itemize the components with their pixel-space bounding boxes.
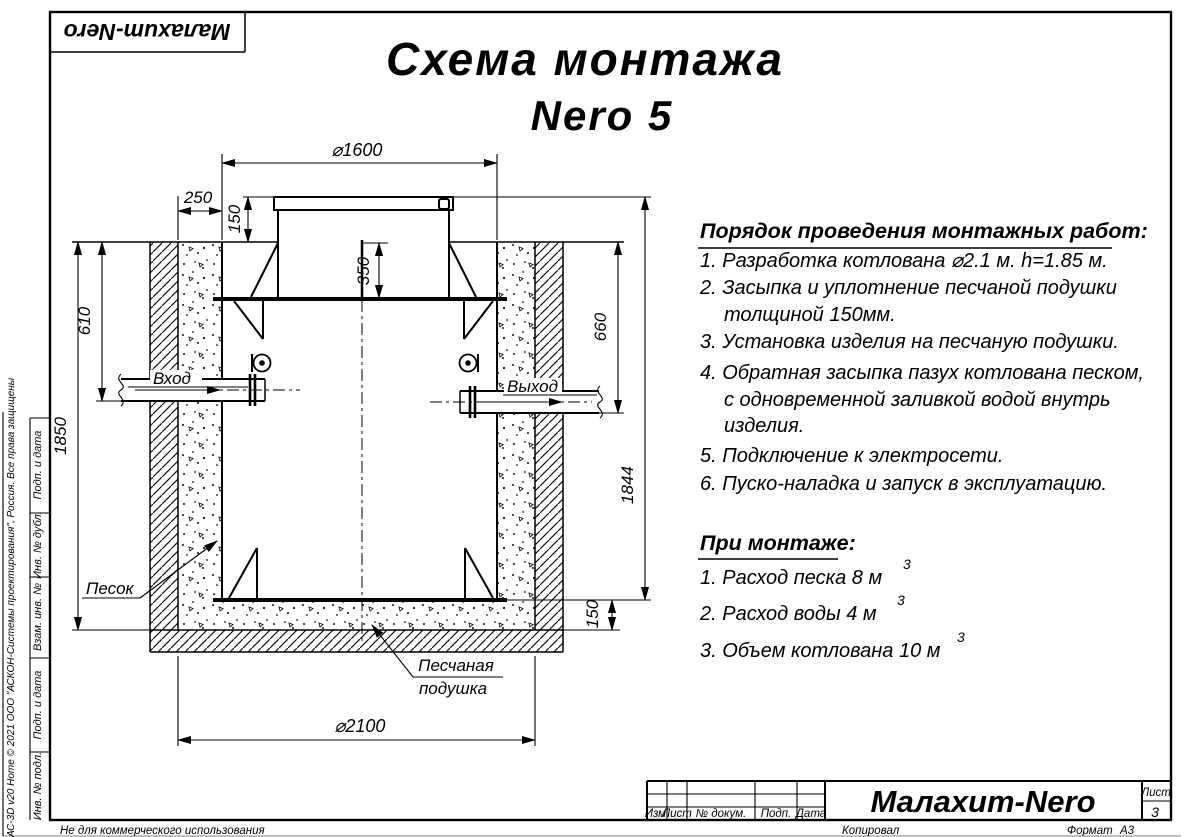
instruction-line: 2. Засыпка и уплотнение песчаной подушки [699, 277, 1117, 299]
logo-text: Малахит-Nero [64, 19, 231, 45]
title-line1: Схема монтажа [386, 33, 784, 85]
tb-col-data: Дата [794, 808, 826, 820]
bottom-braces [229, 548, 493, 598]
non-commercial-note: Не для коммерческого использования [60, 825, 265, 837]
instruction-line: 1. Разработка котлована ⌀2.1 м. h=1.85 м… [700, 250, 1108, 272]
instruction-line: 5. Подключение к электросети. [700, 445, 1003, 467]
sheet-title: Схема монтажа Nero 5 [386, 33, 784, 139]
strip-cell-label: Инв. № подл. [32, 752, 44, 820]
strip-cell-label: Инв. № дубл. [32, 511, 44, 579]
pit-wall-right [535, 242, 563, 630]
strip-cell-label: Подп. и дата [32, 671, 44, 740]
tank-lid [274, 197, 453, 210]
dim-outlet-depth: 660 [591, 242, 624, 413]
tb-col-podp: Подп. [761, 808, 792, 820]
instructions-block: Порядок проведения монтажных работ: 1. Р… [698, 219, 1148, 662]
sand-fill-right [497, 242, 535, 600]
format-value: А3 [1119, 825, 1135, 837]
footer-notes: Копировал Формат А3 [842, 825, 1135, 837]
outlet-label: Выход [507, 377, 558, 396]
dim-text: 350 [354, 256, 373, 285]
strip-cell-label: Подп. и дата [32, 431, 44, 500]
tb-col-list: Лист [661, 808, 692, 820]
title-block: Изм. Лист № докум. Подп. Дата Малахит-Ne… [645, 781, 1171, 820]
dim-text: 250 [183, 188, 213, 207]
dim-text: ⌀1600 [332, 140, 383, 160]
dim-text: 150 [583, 599, 602, 628]
dim-text: 150 [225, 204, 244, 233]
sand-cushion [178, 600, 535, 630]
dim-top-diameter: ⌀1600 [222, 140, 497, 240]
strip-cell-label: Взам. инв. № [32, 583, 44, 651]
mounting-sup: 3 [957, 629, 965, 645]
sand-label-text: Песок [86, 579, 135, 598]
pit-bottom [150, 630, 563, 652]
cad-copyright: КОМПАС-3D v20 Home © 2021 ООО "АСКОН-Сис… [6, 377, 17, 837]
mounting-heading: При монтаже: [700, 531, 856, 555]
cushion-label-text: Песчаная [418, 656, 494, 675]
outlet-pipe: Выход [430, 377, 602, 418]
mounting-line: 1. Расход песка 8 м [700, 567, 882, 589]
dim-cushion-height: 150 [563, 599, 620, 630]
dim-neck-depth: 350 [354, 243, 388, 298]
dim-text: 660 [591, 312, 610, 341]
cushion-label-text: подушка [419, 679, 487, 698]
dim-text: ⌀2100 [335, 716, 386, 736]
mounting-sup: 3 [897, 592, 905, 608]
lifting-lug-left [252, 354, 271, 372]
dim-lid-height: 150 [225, 197, 276, 242]
instruction-line: 4. Обратная засыпка пазух котлована песк… [700, 362, 1144, 384]
instruction-line: с одновременной заливкой водой внутрь [724, 389, 1111, 411]
pit-section [72, 242, 624, 652]
title-line2: Nero 5 [531, 92, 674, 139]
copied-by-label: Копировал [842, 825, 900, 837]
pit-wall-left [150, 242, 178, 630]
format-label: Формат [1067, 825, 1113, 837]
lifting-lug-right [460, 354, 479, 372]
dim-side-gap: 250 [178, 188, 222, 240]
mounting-sup: 3 [903, 556, 911, 572]
lid-handle [439, 199, 449, 209]
tb-col-docnum: № докум. [696, 808, 747, 820]
mounting-line: 3. Объем котлована 10 м [700, 640, 941, 662]
inlet-label: Вход [153, 369, 191, 388]
tb-sheet-label: Лист [1140, 787, 1171, 799]
sand-fill-left [178, 242, 222, 600]
logo-box: Малахит-Nero [50, 12, 245, 52]
instruction-line: изделия. [724, 415, 804, 437]
tb-product-name: Малахит-Nero [870, 784, 1095, 819]
mounting-line: 2. Расход воды 4 м [699, 603, 877, 625]
instruction-line: 6. Пуско-наладка и запуск в эксплуатацию… [700, 473, 1107, 495]
tb-sheet-number: 3 [1151, 804, 1159, 820]
side-strip: Подп. и дата Инв. № дубл. Взам. инв. № П… [6, 377, 50, 837]
instructions-heading: Порядок проведения монтажных работ: [700, 219, 1148, 243]
instruction-line: толщиной 150мм. [724, 304, 896, 326]
instruction-line: 3. Установка изделия на песчаную подушки… [700, 331, 1119, 353]
dim-text: 1850 [51, 417, 70, 455]
drawing-sheet: Малахит-Nero Схема монтажа Nero 5 Подп. … [0, 0, 1184, 837]
dim-text: 1844 [618, 466, 637, 504]
